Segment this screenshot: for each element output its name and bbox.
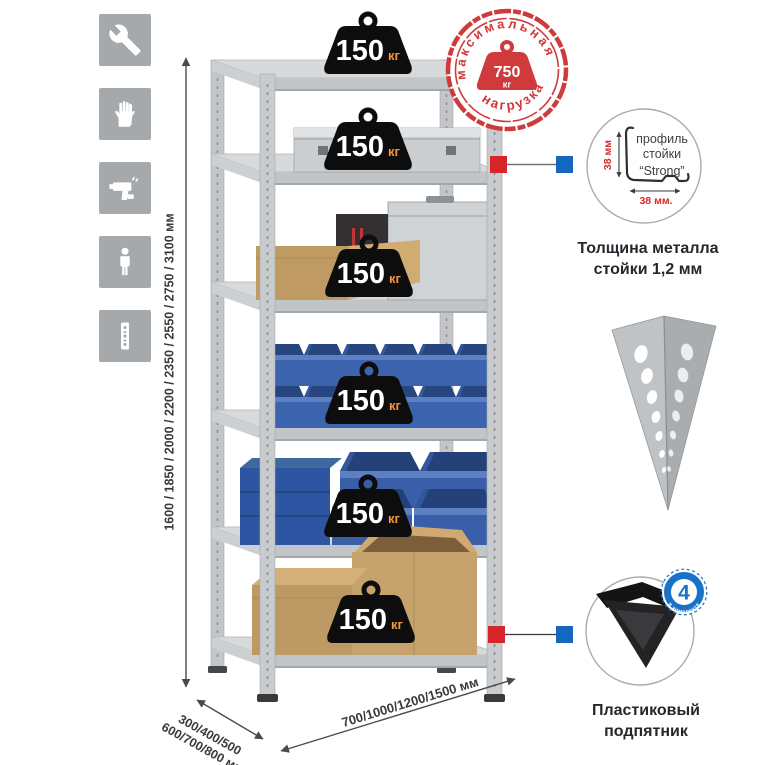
badge-unit: кг <box>388 144 401 159</box>
profile-callout-circle: 38 мм 38 мм. профиль стойки “Strong” <box>587 109 701 223</box>
badge-unit: кг <box>388 511 401 526</box>
icon-tile-gloves <box>99 88 151 140</box>
plastic-foot-left <box>257 694 278 702</box>
profile-caption-line1: Толщина металла <box>538 238 758 259</box>
weight-badge-2: 150 кг <box>324 110 412 170</box>
icon-tile-person <box>99 236 151 288</box>
badge-value: 150 <box>337 258 385 290</box>
badge-value: 150 <box>336 35 384 67</box>
top-callout-connector <box>490 156 573 173</box>
bottom-callout-connector <box>488 626 573 643</box>
plastic-foot-right <box>484 694 505 702</box>
red-marker-square <box>490 156 507 173</box>
icon-tile-perforated-post <box>99 310 151 362</box>
profile-label-3: “Strong” <box>639 164 684 178</box>
perforated-post-icon <box>108 319 142 353</box>
badge-unit: кг <box>391 617 404 632</box>
badge-value: 150 <box>337 385 385 417</box>
foot-caption: Пластиковый подпятник <box>536 700 756 742</box>
badge-unit: кг <box>389 398 402 413</box>
foot-caption-line2: подпятник <box>536 721 756 742</box>
stamp-unit: кг <box>503 80 512 91</box>
profile-caption: Толщина металла стойки 1,2 мм <box>538 238 758 280</box>
icon-tile-wrench <box>99 14 151 66</box>
infographic-canvas: 150 кг 150 кг 150 кг 150 кг 150 кг 150 к… <box>0 0 765 765</box>
wrench-icon <box>108 23 142 57</box>
kit-quantity-value: 4 <box>678 582 690 605</box>
person-icon <box>108 245 142 279</box>
foot-caption-line1: Пластиковый <box>536 700 756 721</box>
profile-dim-vertical: 38 мм <box>602 140 614 170</box>
badge-value: 150 <box>336 498 384 530</box>
drill-icon <box>108 171 142 205</box>
badge-unit: кг <box>389 271 402 286</box>
height-dimension-label: 1600 / 1850 / 2000 / 2200 / 2350 / 2550 … <box>163 213 178 530</box>
weight-badge-1: 150 кг <box>324 14 412 74</box>
foot-callout-circle: 4 в комплекте <box>586 569 707 685</box>
width-dimension-line <box>281 679 515 751</box>
blue-marker-square <box>556 156 573 173</box>
badge-value: 150 <box>339 604 387 636</box>
max-load-stamp: максимальная нагрузка 750 кг <box>441 4 570 129</box>
red-marker-square <box>488 626 505 643</box>
blue-marker-square <box>556 626 573 643</box>
profile-label-1: профиль <box>636 132 688 146</box>
gloves-icon <box>108 97 142 131</box>
badge-unit: кг <box>388 48 401 63</box>
stamp-value: 750 <box>494 64 521 81</box>
profile-dim-horizontal: 38 мм. <box>639 195 672 207</box>
badge-value: 150 <box>336 131 384 163</box>
profile-label-2: стойки <box>643 147 681 161</box>
profile-caption-line2: стойки 1,2 мм <box>538 259 758 280</box>
angle-post-image <box>612 316 716 510</box>
icon-tile-drill <box>99 162 151 214</box>
